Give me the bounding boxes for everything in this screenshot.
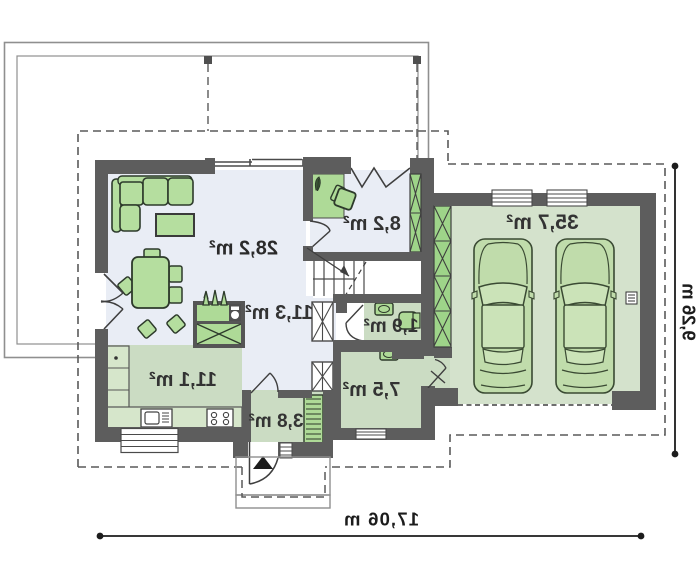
svg-text:9,26 m: 9,26 m [679,283,700,341]
svg-text:28,2 m²: 28,2 m² [209,238,278,260]
svg-text:35,7 m²: 35,7 m² [506,211,578,234]
svg-text:7,5 m²: 7,5 m² [342,379,400,401]
svg-text:17,06 m: 17,06 m [343,509,419,530]
svg-text:8,2 m²: 8,2 m² [343,213,401,235]
svg-text:3,8 m²: 3,8 m² [249,411,304,432]
svg-text:11,1 m²: 11,1 m² [149,369,217,391]
svg-text:1,9 m²: 1,9 m² [364,316,419,337]
svg-text:11,3 m²: 11,3 m² [245,302,313,324]
